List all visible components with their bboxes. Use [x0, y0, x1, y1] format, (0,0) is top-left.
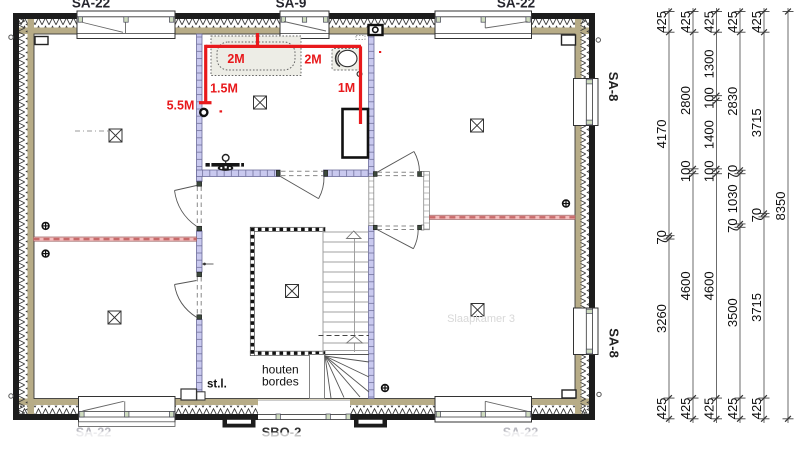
svg-text:70: 70 [725, 165, 740, 179]
svg-text:3260: 3260 [654, 304, 669, 333]
svg-text:Slaapkamer 3: Slaapkamer 3 [447, 313, 515, 325]
svg-text:4170: 4170 [654, 119, 669, 148]
svg-text:4600: 4600 [701, 271, 716, 300]
svg-text:1400: 1400 [701, 120, 716, 149]
svg-text:SA-9: SA-9 [276, 0, 307, 10]
svg-text:3715: 3715 [749, 108, 764, 137]
svg-text:st.l.: st.l. [207, 379, 227, 391]
svg-text:4600: 4600 [678, 271, 693, 300]
svg-text:8350: 8350 [773, 192, 788, 221]
svg-text:425: 425 [725, 398, 740, 420]
svg-text:SA-22: SA-22 [72, 0, 110, 10]
svg-text:1030: 1030 [725, 184, 740, 213]
svg-text:SA-8: SA-8 [607, 328, 622, 358]
svg-text:425: 425 [749, 11, 764, 33]
svg-text:100: 100 [701, 160, 716, 182]
svg-text:1.5M: 1.5M [210, 82, 238, 96]
svg-text:425: 425 [678, 11, 693, 33]
svg-text:425: 425 [701, 11, 716, 33]
svg-text:100: 100 [678, 160, 693, 182]
svg-text:1M: 1M [338, 81, 355, 95]
svg-text:2M: 2M [227, 52, 244, 66]
svg-text:3500: 3500 [725, 298, 740, 327]
svg-text:SA-22: SA-22 [497, 0, 535, 10]
svg-text:425: 425 [654, 11, 669, 33]
svg-text:425: 425 [654, 398, 669, 420]
svg-text:1300: 1300 [701, 49, 716, 78]
svg-text:100: 100 [701, 87, 716, 109]
svg-text:bordes: bordes [262, 375, 299, 389]
svg-text:SA-8: SA-8 [606, 72, 621, 102]
svg-text:2830: 2830 [725, 87, 740, 116]
svg-text:70: 70 [725, 218, 740, 232]
svg-text:425: 425 [678, 398, 693, 420]
svg-text:425: 425 [749, 398, 764, 420]
svg-text:3715: 3715 [749, 293, 764, 322]
svg-text:2800: 2800 [678, 86, 693, 115]
svg-text:425: 425 [725, 11, 740, 33]
svg-text:2M: 2M [304, 53, 321, 67]
svg-text:425: 425 [701, 398, 716, 420]
svg-text:70: 70 [654, 230, 669, 244]
svg-text:70: 70 [749, 208, 764, 222]
svg-text:5.5M: 5.5M [167, 99, 195, 113]
